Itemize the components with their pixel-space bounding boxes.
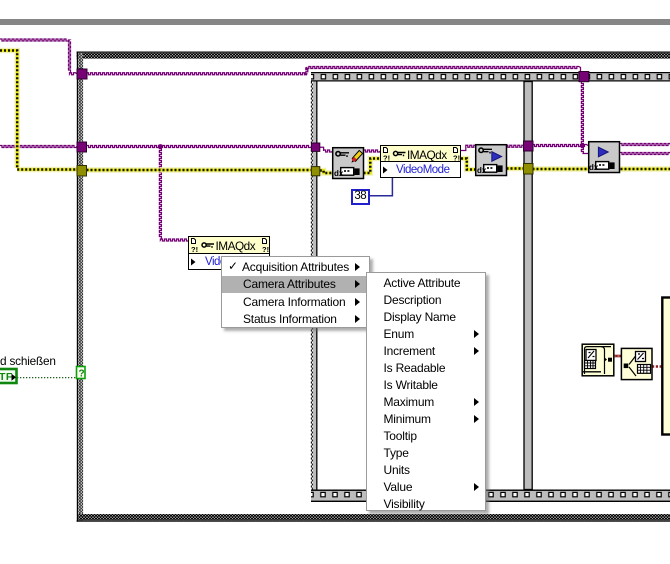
svg-text:?!: ?! <box>383 154 390 163</box>
svg-text:?!: ?! <box>262 245 269 254</box>
svg-text:dx: dx <box>334 169 344 178</box>
svg-text:dx: dx <box>477 166 487 175</box>
svg-text:?: ? <box>79 369 85 380</box>
svg-text:?!: ?! <box>453 154 460 163</box>
svg-text:dx: dx <box>589 163 599 172</box>
svg-text:?!: ?! <box>191 245 198 254</box>
svg-text:TF: TF <box>0 371 13 383</box>
